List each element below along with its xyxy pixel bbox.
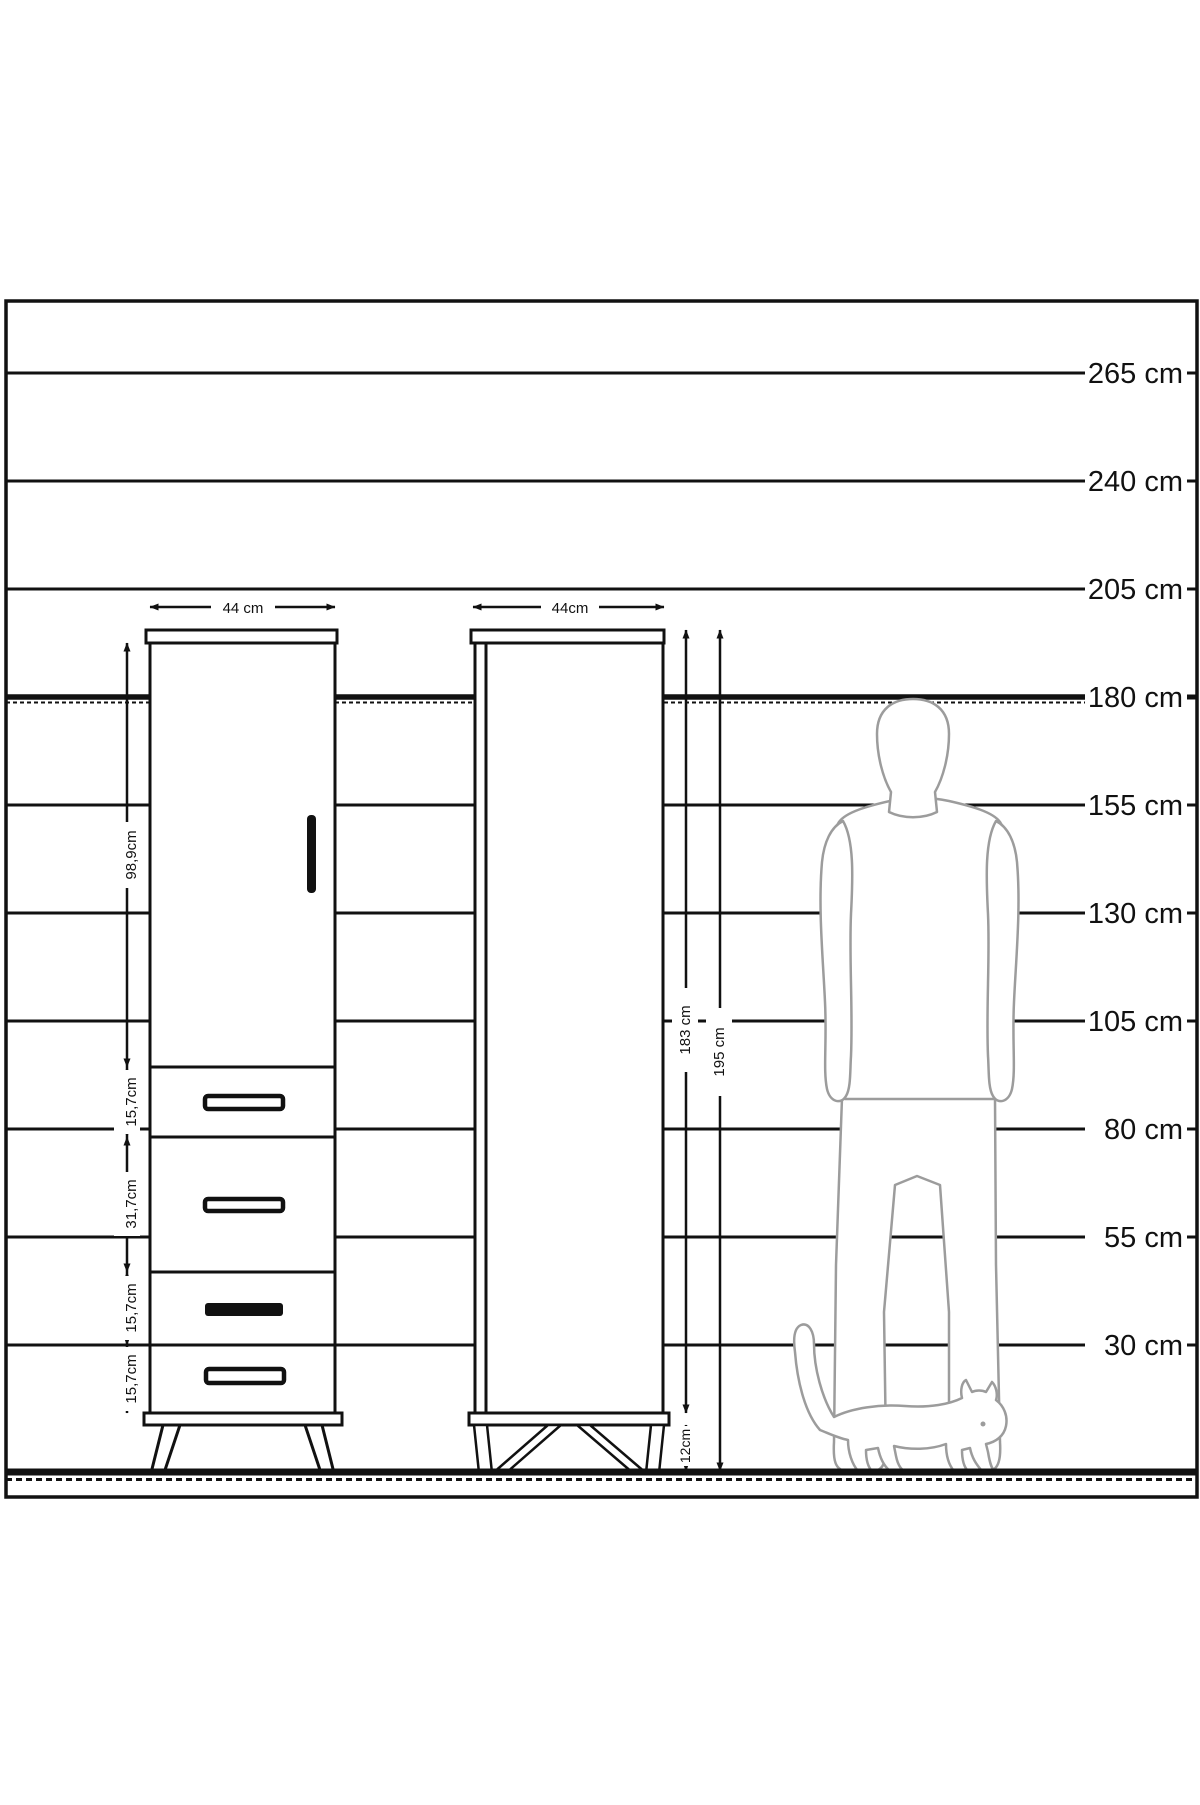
man-right-arm xyxy=(987,821,1019,1101)
dimension-diagram-page: 265 cm 240 cm 205 cm 180 cm 155 cm 130 c… xyxy=(0,0,1200,1800)
scale-label-180: 180 cm xyxy=(1088,682,1183,714)
section-label-drawer1: 15,7cm xyxy=(123,1077,140,1126)
drawer-handle xyxy=(205,1096,283,1109)
leg-height-label: 12cm xyxy=(677,1429,693,1463)
drawer-handle xyxy=(206,1369,284,1383)
man-left-arm xyxy=(820,821,852,1101)
scale-label-105: 105 cm xyxy=(1088,1006,1183,1038)
dimension-diagram: 265 cm 240 cm 205 cm 180 cm 155 cm 130 c… xyxy=(0,0,1200,1800)
drawer-handle xyxy=(205,1199,283,1211)
section-label-drawer4: 15,7cm xyxy=(123,1354,140,1403)
scale-label-205: 205 cm xyxy=(1088,574,1183,606)
scale-label-55: 55 cm xyxy=(1104,1222,1183,1254)
cabinet-side-panel xyxy=(475,643,663,1413)
scale-label-80: 80 cm xyxy=(1104,1114,1183,1146)
body-height-label: 183 cm xyxy=(677,1005,694,1054)
scale-label-130: 130 cm xyxy=(1088,898,1183,930)
cabinet-top-board xyxy=(471,630,664,643)
cabinet-front-width-label: 44 cm xyxy=(223,600,264,617)
cabinet-top-board xyxy=(146,630,337,643)
cabinet-bottom-rail xyxy=(144,1413,342,1425)
man-torso xyxy=(831,798,1009,1099)
scale-label-265: 265 cm xyxy=(1088,358,1183,390)
section-label-door: 98,9cm xyxy=(123,830,140,879)
cabinet-side-width-label: 44cm xyxy=(552,600,589,617)
cat-eye xyxy=(981,1422,986,1427)
door-handle xyxy=(307,815,316,893)
scale-label-30: 30 cm xyxy=(1104,1330,1183,1362)
cabinet-bottom-rail xyxy=(469,1413,669,1425)
drawer-handle xyxy=(205,1303,283,1316)
cabinet-body xyxy=(150,643,335,1413)
section-label-drawer2: 31,7cm xyxy=(123,1179,140,1228)
section-label-drawer3: 15,7cm xyxy=(123,1283,140,1332)
total-height-label: 195 cm xyxy=(711,1027,728,1076)
scale-label-155: 155 cm xyxy=(1088,790,1183,822)
scale-label-240: 240 cm xyxy=(1088,466,1183,498)
